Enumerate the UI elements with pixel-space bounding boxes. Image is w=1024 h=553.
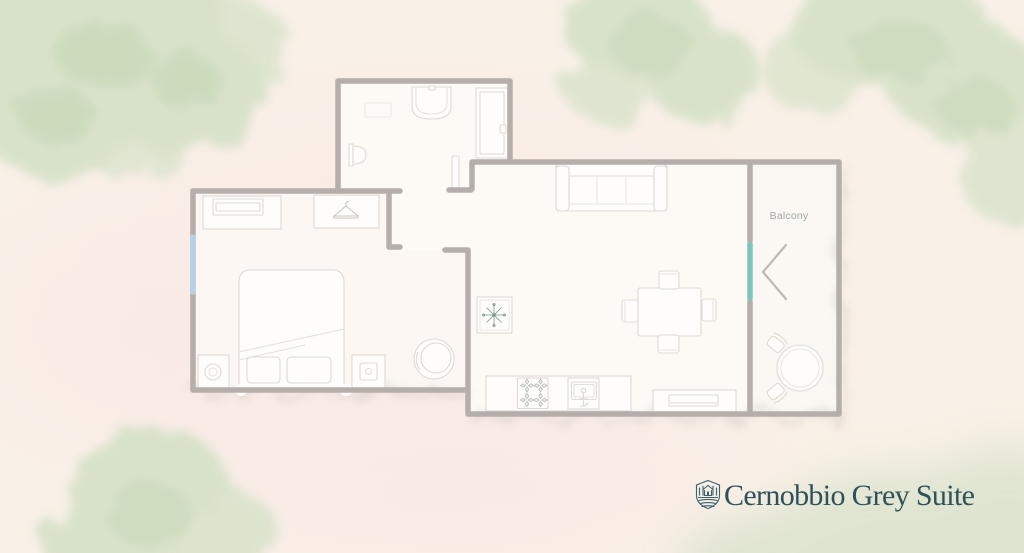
svg-text:Cernobbio Grey Suite: Cernobbio Grey Suite <box>724 479 975 512</box>
svg-text:Balcony: Balcony <box>770 210 809 222</box>
